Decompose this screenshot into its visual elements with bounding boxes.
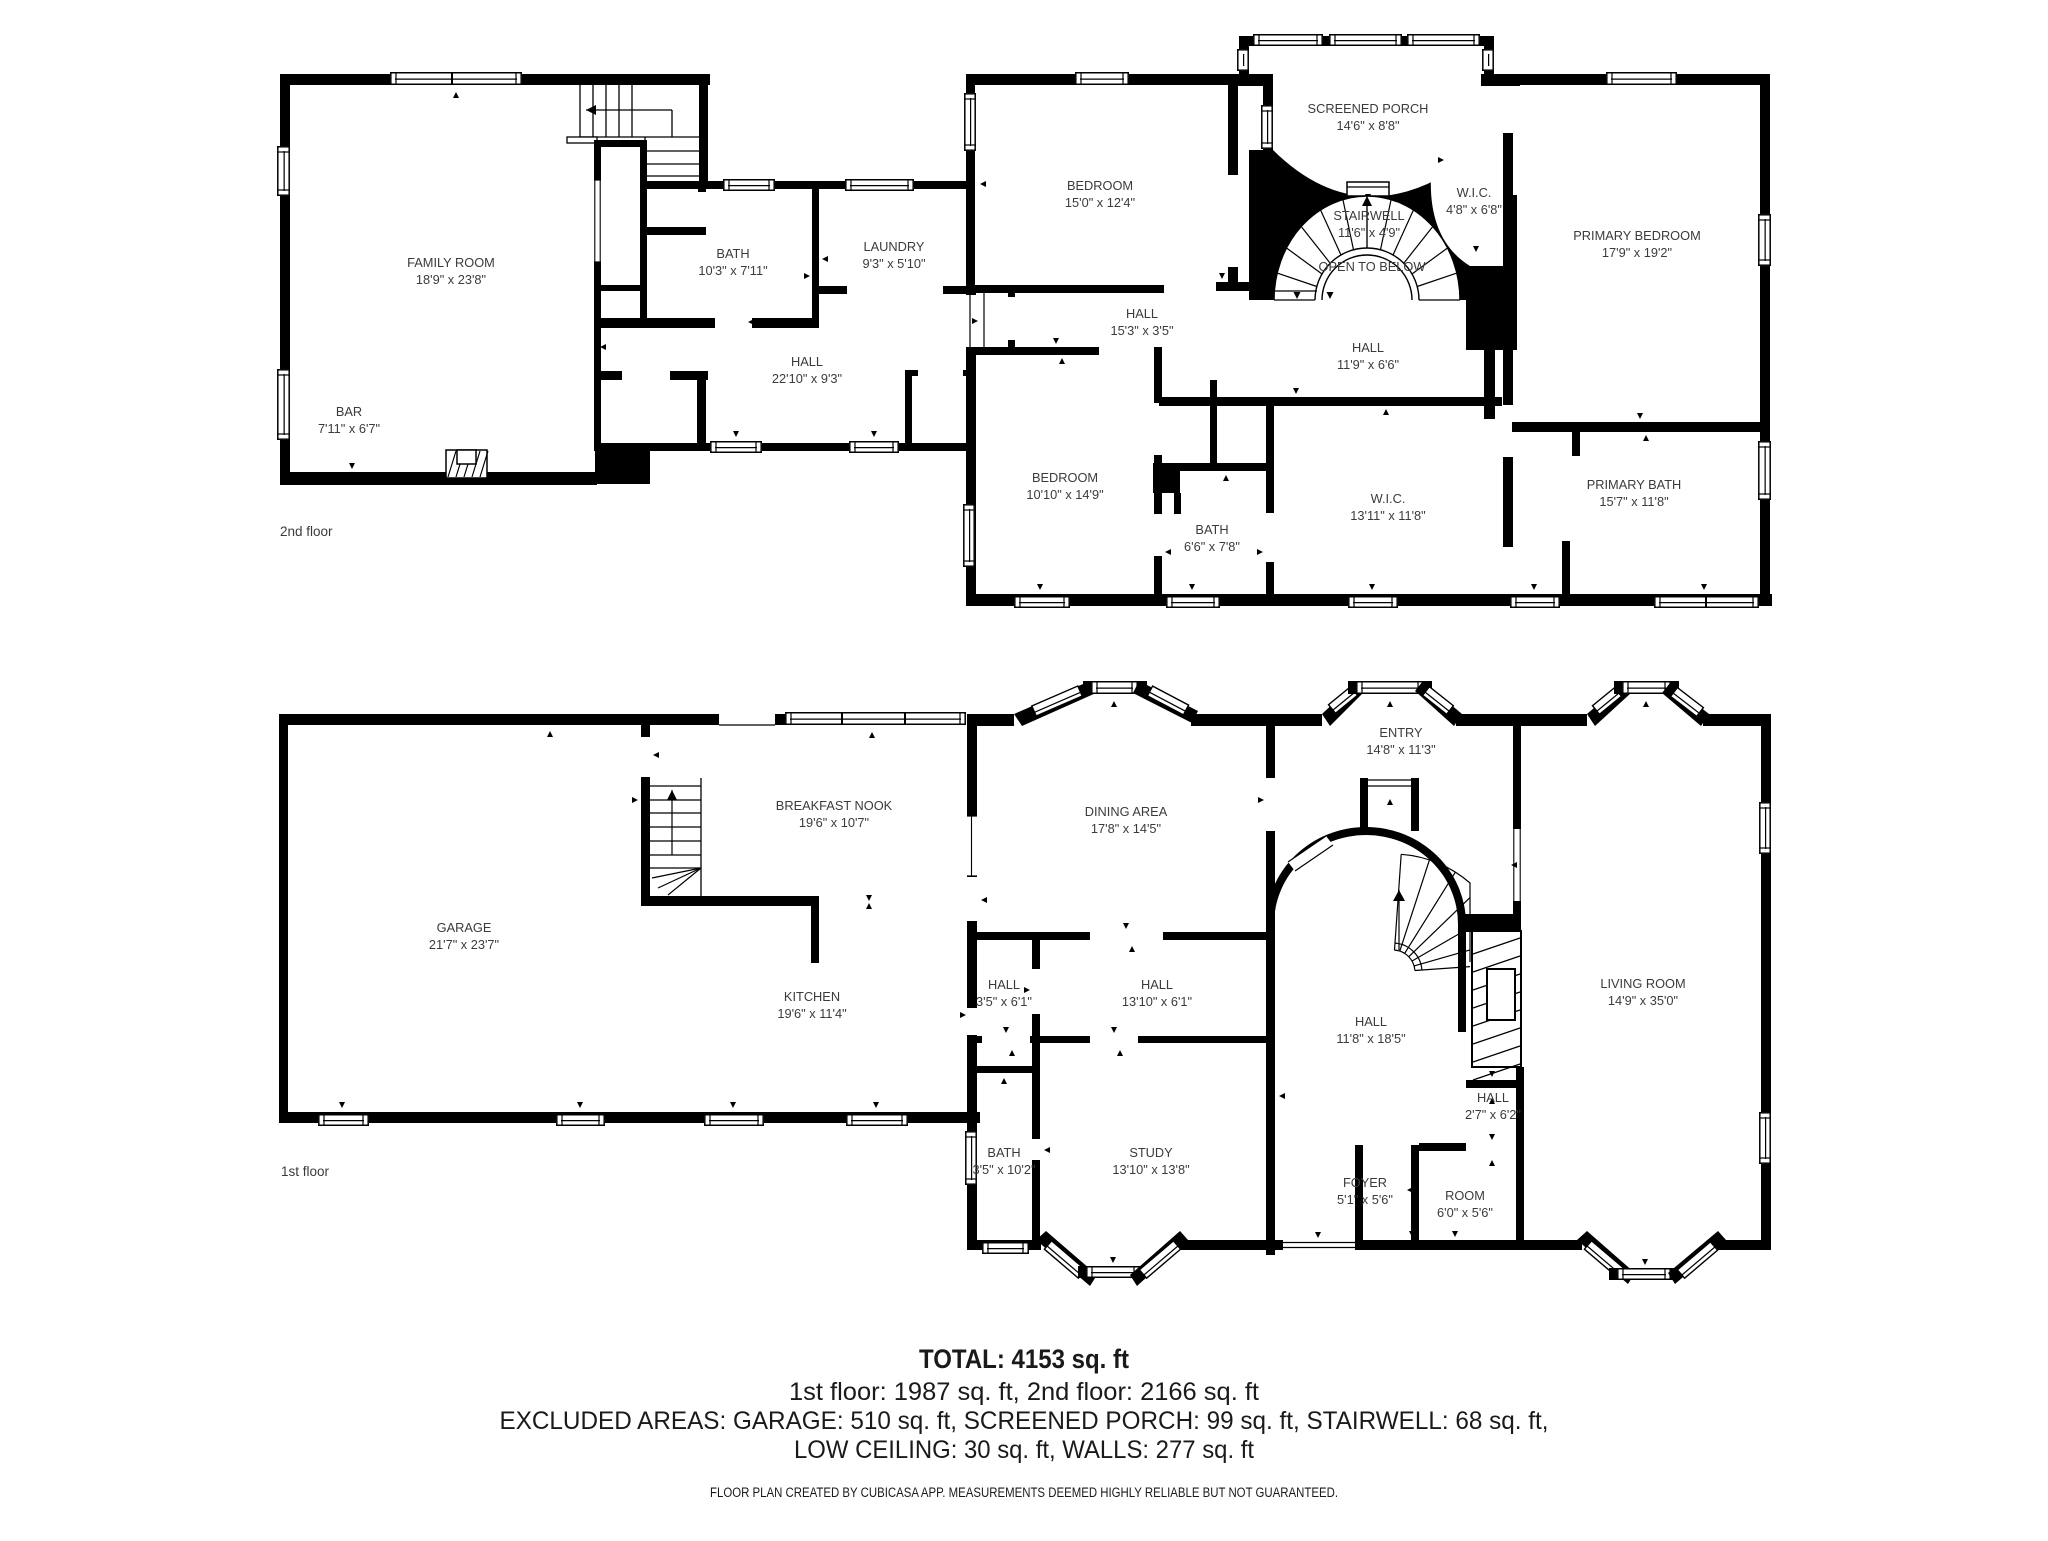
svg-text:STUDY: STUDY	[1129, 1145, 1173, 1160]
svg-text:BATH: BATH	[716, 246, 749, 261]
svg-text:BEDROOM: BEDROOM	[1032, 470, 1098, 485]
svg-text:10'10" x 14'9": 10'10" x 14'9"	[1026, 487, 1103, 502]
svg-text:BEDROOM: BEDROOM	[1067, 178, 1133, 193]
svg-text:2'7" x 6'2": 2'7" x 6'2"	[1465, 1107, 1521, 1122]
svg-text:14'8" x 11'3": 14'8" x 11'3"	[1366, 742, 1435, 757]
svg-text:LAUNDRY: LAUNDRY	[864, 239, 925, 254]
svg-text:BATH: BATH	[1195, 522, 1228, 537]
svg-text:11'9" x 6'6": 11'9" x 6'6"	[1337, 357, 1399, 372]
svg-text:KITCHEN: KITCHEN	[784, 989, 840, 1004]
svg-text:5'1" x 5'6": 5'1" x 5'6"	[1337, 1192, 1393, 1207]
svg-text:13'10" x 13'8": 13'10" x 13'8"	[1112, 1162, 1189, 1177]
svg-text:17'9" x 19'2": 17'9" x 19'2"	[1602, 245, 1672, 260]
svg-text:HALL: HALL	[1477, 1090, 1509, 1105]
svg-text:1st floor: 1987 sq. ft, 2nd fl: 1st floor: 1987 sq. ft, 2nd floor: 2166 …	[789, 1378, 1259, 1406]
svg-text:W.I.C.: W.I.C.	[1457, 185, 1492, 200]
svg-text:STAIRWELL: STAIRWELL	[1333, 208, 1404, 223]
svg-text:6'0" x 5'6": 6'0" x 5'6"	[1437, 1205, 1493, 1220]
svg-text:DINING AREA: DINING AREA	[1085, 804, 1168, 819]
svg-text:W.I.C.: W.I.C.	[1371, 491, 1406, 506]
svg-text:FLOOR PLAN CREATED BY CUBICASA: FLOOR PLAN CREATED BY CUBICASA APP. MEAS…	[710, 1485, 1338, 1500]
svg-text:2nd floor: 2nd floor	[280, 524, 333, 539]
svg-text:9'3" x 5'10": 9'3" x 5'10"	[862, 256, 925, 271]
svg-text:13'11" x 11'8": 13'11" x 11'8"	[1350, 508, 1425, 523]
svg-text:HALL: HALL	[791, 354, 823, 369]
svg-text:OPEN TO BELOW: OPEN TO BELOW	[1319, 259, 1427, 274]
svg-text:FOYER: FOYER	[1343, 1175, 1387, 1190]
svg-text:TOTAL: 4153 sq. ft: TOTAL: 4153 sq. ft	[919, 1344, 1129, 1374]
svg-text:7'11" x 6'7": 7'11" x 6'7"	[318, 421, 380, 436]
svg-text:22'10" x 9'3": 22'10" x 9'3"	[772, 371, 842, 386]
svg-text:BREAKFAST NOOK: BREAKFAST NOOK	[776, 798, 893, 813]
svg-text:GARAGE: GARAGE	[437, 920, 492, 935]
svg-text:SCREENED PORCH: SCREENED PORCH	[1308, 101, 1429, 116]
svg-text:HALL: HALL	[1141, 977, 1173, 992]
svg-text:10'3" x 7'11": 10'3" x 7'11"	[698, 263, 767, 278]
svg-text:1st floor: 1st floor	[281, 1164, 330, 1179]
svg-text:3'5" x 6'1": 3'5" x 6'1"	[976, 994, 1032, 1009]
svg-text:EXCLUDED AREAS: GARAGE: 510 sq: EXCLUDED AREAS: GARAGE: 510 sq. ft, SCRE…	[500, 1407, 1549, 1435]
svg-text:HALL: HALL	[1355, 1014, 1387, 1029]
svg-text:LIVING ROOM: LIVING ROOM	[1600, 976, 1685, 991]
svg-text:3'5" x 10'2": 3'5" x 10'2"	[972, 1162, 1035, 1177]
svg-text:15'3" x 3'5": 15'3" x 3'5"	[1110, 323, 1173, 338]
svg-text:19'6" x 11'4": 19'6" x 11'4"	[777, 1006, 846, 1021]
svg-text:6'6" x 7'8": 6'6" x 7'8"	[1184, 539, 1240, 554]
svg-text:BATH: BATH	[987, 1145, 1020, 1160]
svg-text:14'9" x 35'0": 14'9" x 35'0"	[1608, 993, 1678, 1008]
svg-text:19'6" x 10'7": 19'6" x 10'7"	[799, 815, 869, 830]
svg-text:18'9" x 23'8": 18'9" x 23'8"	[416, 272, 486, 287]
svg-text:ROOM: ROOM	[1445, 1188, 1485, 1203]
svg-text:15'0" x 12'4": 15'0" x 12'4"	[1065, 195, 1135, 210]
svg-text:21'7" x 23'7": 21'7" x 23'7"	[429, 937, 499, 952]
svg-text:HALL: HALL	[1352, 340, 1384, 355]
svg-text:ENTRY: ENTRY	[1379, 725, 1423, 740]
svg-text:15'7" x 11'8": 15'7" x 11'8"	[1599, 494, 1668, 509]
svg-text:17'8" x 14'5": 17'8" x 14'5"	[1091, 821, 1161, 836]
svg-text:LOW CEILING: 30 sq. ft, WALLS:: LOW CEILING: 30 sq. ft, WALLS: 277 sq. f…	[794, 1436, 1254, 1464]
svg-text:4'8" x 6'8": 4'8" x 6'8"	[1446, 202, 1502, 217]
svg-text:BAR: BAR	[336, 404, 362, 419]
svg-text:11'6" x 4'9": 11'6" x 4'9"	[1338, 225, 1400, 240]
svg-text:11'8" x 18'5": 11'8" x 18'5"	[1336, 1031, 1405, 1046]
svg-text:HALL: HALL	[1126, 306, 1158, 321]
svg-text:FAMILY ROOM: FAMILY ROOM	[407, 255, 495, 270]
svg-text:14'6" x 8'8": 14'6" x 8'8"	[1336, 118, 1399, 133]
svg-text:13'10" x 6'1": 13'10" x 6'1"	[1122, 994, 1192, 1009]
svg-text:PRIMARY BEDROOM: PRIMARY BEDROOM	[1573, 228, 1701, 243]
svg-text:HALL: HALL	[988, 977, 1020, 992]
svg-text:PRIMARY BATH: PRIMARY BATH	[1587, 477, 1682, 492]
